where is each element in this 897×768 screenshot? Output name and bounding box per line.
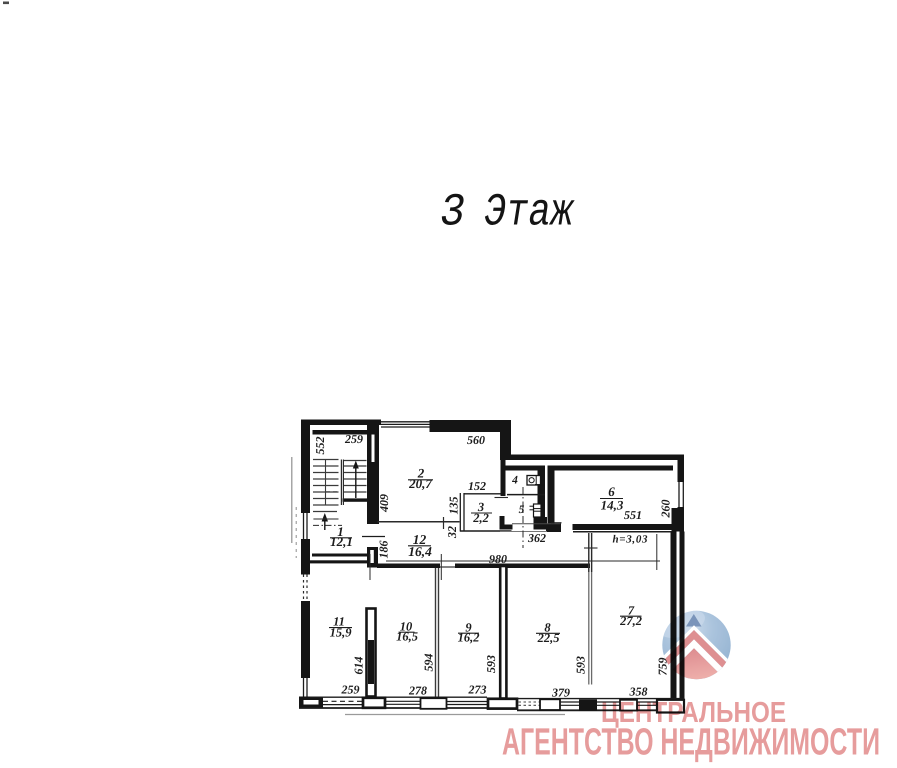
svg-text:552: 552 <box>313 437 327 455</box>
svg-text:560: 560 <box>467 433 485 447</box>
svg-text:594: 594 <box>422 654 436 672</box>
svg-text:980: 980 <box>489 552 507 566</box>
svg-text:135: 135 <box>447 497 461 515</box>
svg-text:551: 551 <box>624 508 642 522</box>
svg-text:20,7: 20,7 <box>408 476 432 491</box>
svg-text:14,3: 14,3 <box>601 498 624 513</box>
svg-text:152: 152 <box>468 479 486 493</box>
svg-text:614: 614 <box>352 657 366 675</box>
svg-text:Этаж: Этаж <box>484 187 575 239</box>
svg-text:32: 32 <box>445 526 459 539</box>
svg-text:593: 593 <box>484 655 498 673</box>
svg-text:4: 4 <box>511 475 518 487</box>
svg-text:3: 3 <box>440 187 465 239</box>
svg-text:259: 259 <box>344 432 363 446</box>
svg-text:259: 259 <box>341 683 360 697</box>
svg-text:5: 5 <box>519 504 525 516</box>
svg-text:593: 593 <box>574 656 588 674</box>
svg-text:16,5: 16,5 <box>396 630 418 644</box>
svg-text:409: 409 <box>377 494 391 513</box>
svg-text:379: 379 <box>551 686 570 700</box>
svg-text:186: 186 <box>377 541 391 559</box>
svg-text:260: 260 <box>659 500 673 519</box>
svg-text:АГЕНТСТВО НЕДВИЖИМОСТИ: АГЕНТСТВО НЕДВИЖИМОСТИ <box>502 722 880 764</box>
svg-text:278: 278 <box>408 684 427 698</box>
svg-text:h=3,03: h=3,03 <box>613 534 649 546</box>
svg-text:273: 273 <box>468 683 487 697</box>
svg-text:362: 362 <box>527 531 546 545</box>
svg-text:12,1: 12,1 <box>330 534 353 549</box>
svg-text:16,2: 16,2 <box>458 631 480 645</box>
